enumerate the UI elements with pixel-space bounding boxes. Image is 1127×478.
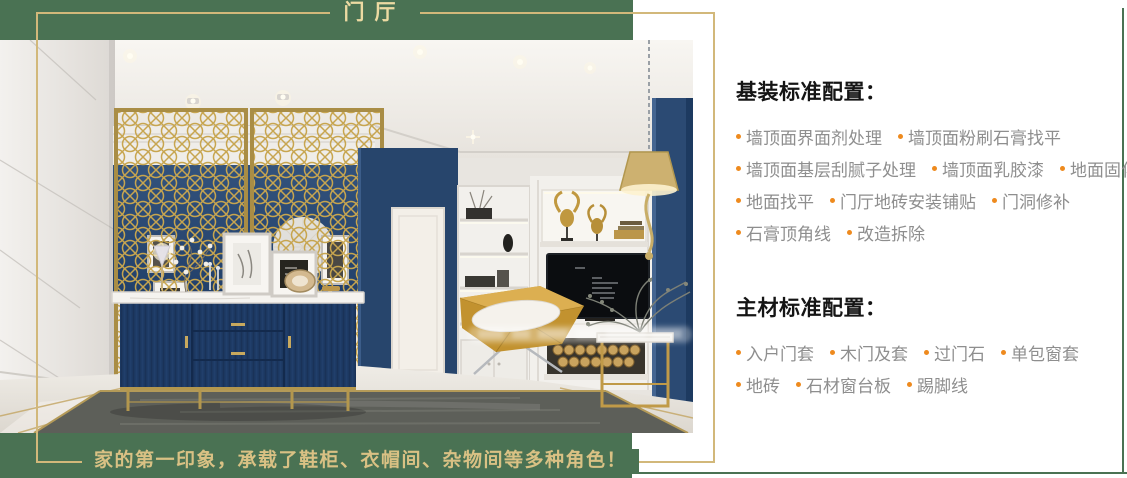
config-item: 墙顶面乳胶漆 [932,156,1044,181]
config-item-label: 踢脚线 [917,372,968,397]
basic-config-heading: 基装标准配置： [736,76,1122,106]
config-row: 墙顶面基层刮腻子处理 墙顶面乳胶漆 地面固化 [736,152,1122,184]
bullet-icon [932,166,937,171]
config-item-label: 地面固化 [1070,156,1127,181]
config-item: 石膏顶角线 [736,220,831,245]
config-item: 地面找平 [736,188,814,213]
bullet-icon [907,382,912,387]
config-item-label: 墙顶面乳胶漆 [942,156,1044,181]
config-item-label: 墙顶面粉刷石膏找平 [908,124,1061,149]
config-item: 地砖 [736,372,780,397]
footer-caption: 家的第一印象，承载了鞋柜、衣帽间、杂物间等多种角色！ [82,449,639,473]
config-item-label: 入户门套 [746,340,814,365]
config-item-label: 地砖 [746,372,780,397]
bullet-icon [847,230,852,235]
foyer-slide: 门厅 [0,0,1127,478]
config-item: 单包窗套 [1001,340,1079,365]
config-row: 石膏顶角线 改造拆除 [736,216,1122,248]
bullet-icon [830,198,835,203]
config-item: 门洞修补 [992,188,1070,213]
config-item: 石材窗台板 [796,372,891,397]
bullet-icon [736,166,741,171]
section-basic-config: 基装标准配置： 墙顶面界面剂处理 墙顶面粉刷石膏找平 墙顶面基层刮腻子处理 墙顶… [736,76,1122,248]
config-row: 地砖 石材窗台板 踢脚线 [736,368,1122,400]
bullet-icon [1060,166,1065,171]
bullet-icon [830,350,835,355]
config-item: 踢脚线 [907,372,968,397]
slide-right-border [1122,8,1124,474]
config-item: 墙顶面界面剂处理 [736,124,882,149]
gold-frame [36,12,715,463]
config-item: 地面固化 [1060,156,1127,181]
config-item-label: 石膏顶角线 [746,220,831,245]
config-item-label: 墙顶面界面剂处理 [746,124,882,149]
main-materials-heading: 主材标准配置： [736,292,1122,322]
bullet-icon [992,198,997,203]
bullet-icon [736,198,741,203]
bullet-icon [736,230,741,235]
config-item-label: 石材窗台板 [806,372,891,397]
config-row: 墙顶面界面剂处理 墙顶面粉刷石膏找平 [736,120,1122,152]
section-main-materials: 主材标准配置： 入户门套 木门及套 过门石 单包窗套 地砖 石材窗台板 踢脚线 [736,292,1122,400]
config-item-label: 过门石 [934,340,985,365]
config-item-label: 木门及套 [840,340,908,365]
bullet-icon [796,382,801,387]
config-item: 门厅地砖安装铺贴 [830,188,976,213]
page-title: 门厅 [36,2,713,24]
config-item-label: 改造拆除 [857,220,925,245]
config-item: 木门及套 [830,340,908,365]
config-row: 入户门套 木门及套 过门石 单包窗套 [736,336,1122,368]
bullet-icon [1001,350,1006,355]
config-item: 改造拆除 [847,220,925,245]
config-item: 墙顶面粉刷石膏找平 [898,124,1061,149]
config-item: 墙顶面基层刮腻子处理 [736,156,916,181]
config-item-label: 单包窗套 [1011,340,1079,365]
config-panel: 基装标准配置： 墙顶面界面剂处理 墙顶面粉刷石膏找平 墙顶面基层刮腻子处理 墙顶… [736,76,1122,400]
config-item-label: 门厅地砖安装铺贴 [840,188,976,213]
bullet-icon [898,134,903,139]
bullet-icon [736,134,741,139]
config-row: 地面找平 门厅地砖安装铺贴 门洞修补 [736,184,1122,216]
bullet-icon [736,350,741,355]
bullet-icon [924,350,929,355]
bullet-icon [736,382,741,387]
config-item-label: 地面找平 [746,188,814,213]
config-item-label: 门洞修补 [1002,188,1070,213]
config-item-label: 墙顶面基层刮腻子处理 [746,156,916,181]
config-item: 入户门套 [736,340,814,365]
config-item: 过门石 [924,340,985,365]
